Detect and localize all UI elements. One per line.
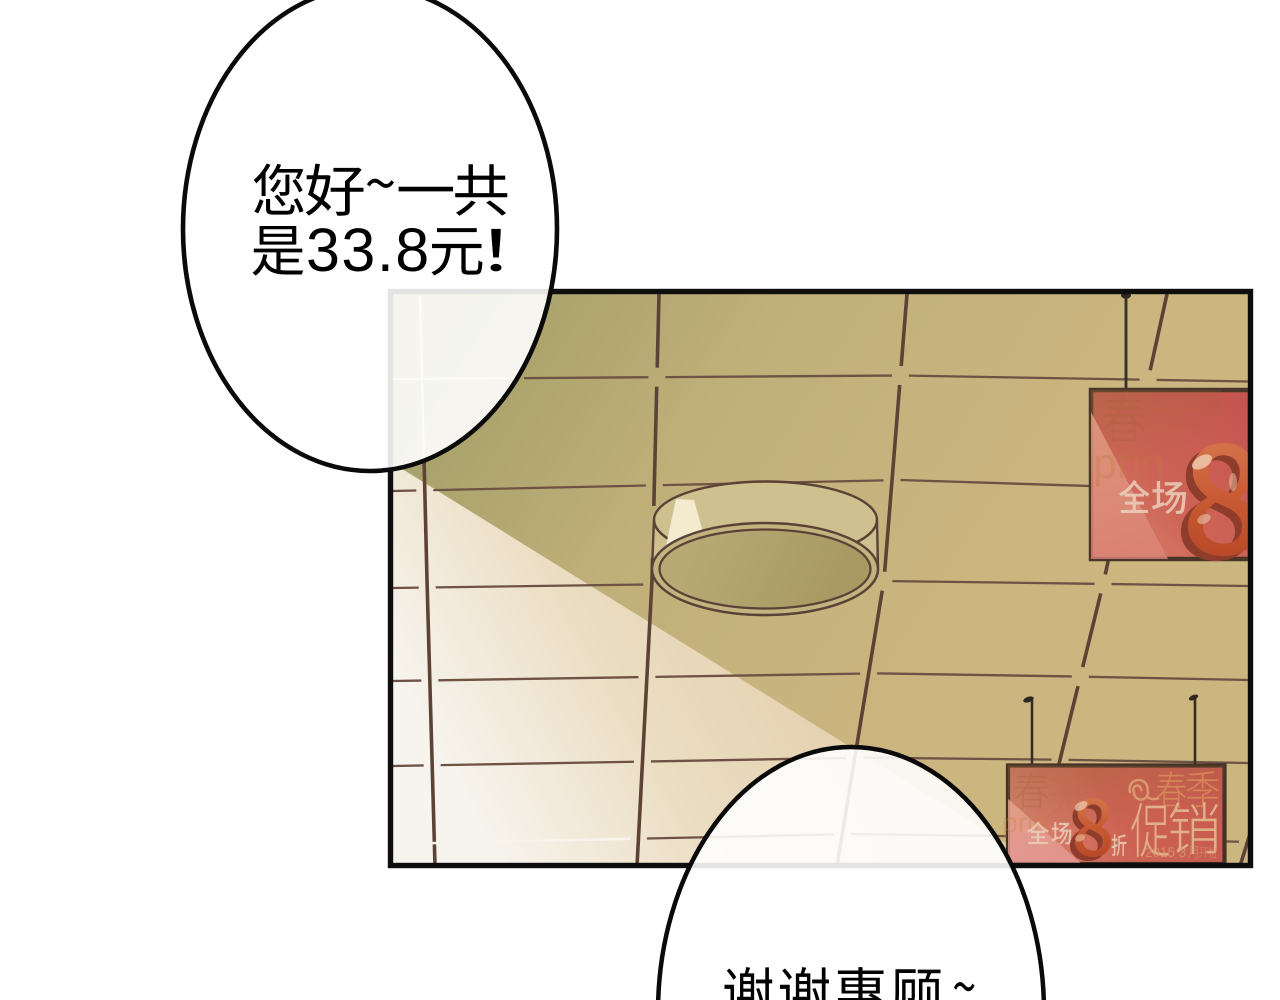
- svg-text:prin: prin: [1093, 440, 1165, 488]
- svg-text:33.8: 33.8: [306, 216, 431, 284]
- svg-text:2015 3: 2015 3: [1145, 845, 1186, 860]
- svg-text:prin: prin: [1002, 807, 1049, 838]
